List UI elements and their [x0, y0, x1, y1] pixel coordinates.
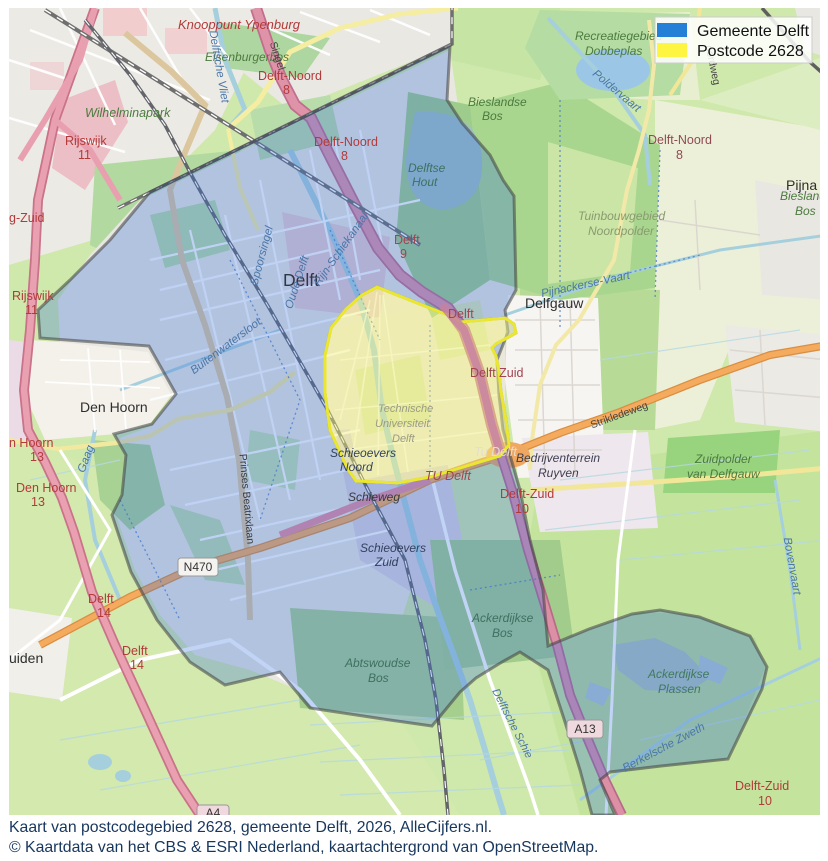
svg-text:13: 13 [31, 495, 45, 509]
svg-text:A13: A13 [574, 722, 596, 736]
svg-text:Universiteit: Universiteit [375, 418, 430, 430]
svg-text:Dobbeplas: Dobbeplas [585, 44, 642, 58]
svg-text:uiden: uiden [9, 650, 43, 666]
svg-text:Rijswijk: Rijswijk [12, 289, 54, 303]
svg-text:8: 8 [676, 148, 683, 162]
svg-text:Bos: Bos [492, 626, 513, 640]
svg-text:Delft-Zuid: Delft-Zuid [735, 779, 789, 793]
svg-text:Noordpolder: Noordpolder [588, 224, 655, 238]
svg-text:Bos: Bos [795, 204, 816, 218]
svg-text:Bos: Bos [482, 109, 503, 123]
svg-text:14: 14 [97, 606, 111, 620]
svg-text:A4: A4 [206, 806, 221, 815]
svg-text:Den Hoorn: Den Hoorn [16, 481, 76, 495]
svg-text:Ruyven: Ruyven [538, 466, 579, 480]
svg-text:Knooppunt Ypenburg: Knooppunt Ypenburg [178, 17, 301, 32]
svg-text:Noord: Noord [340, 460, 373, 474]
svg-text:Recreatiegebied: Recreatiegebied [575, 29, 663, 43]
svg-text:Gemeente Delft: Gemeente Delft [697, 23, 810, 40]
svg-text:11: 11 [25, 303, 38, 317]
svg-text:Schieweg: Schieweg [348, 490, 400, 504]
svg-text:Tuinbouwgebied: Tuinbouwgebied [578, 209, 666, 223]
svg-text:Schieoevers: Schieoevers [360, 541, 426, 555]
svg-text:Zuidpolder: Zuidpolder [694, 452, 753, 466]
svg-text:Wilhelminapark: Wilhelminapark [85, 106, 171, 120]
svg-text:Bieslandse: Bieslandse [468, 95, 527, 109]
svg-text:TU Delft: TU Delft [425, 469, 471, 483]
svg-text:Bedrijventerrein: Bedrijventerrein [516, 451, 600, 465]
svg-text:Schieoevers: Schieoevers [330, 446, 396, 460]
svg-text:Delft-Noord: Delft-Noord [314, 135, 378, 149]
svg-text:Delftse: Delftse [408, 161, 446, 175]
svg-text:g-Zuid: g-Zuid [9, 211, 44, 225]
svg-text:n Hoorn: n Hoorn [9, 436, 54, 450]
svg-text:8: 8 [341, 149, 348, 163]
svg-text:Tu Delft: Tu Delft [474, 445, 517, 459]
svg-text:Zuid: Zuid [374, 555, 399, 569]
svg-text:Ackerdijkse: Ackerdijkse [471, 611, 534, 625]
svg-text:Technische: Technische [378, 403, 433, 415]
svg-text:11: 11 [78, 148, 91, 162]
svg-text:Delft: Delft [88, 592, 114, 606]
svg-text:Bos: Bos [368, 671, 389, 685]
svg-text:8: 8 [283, 83, 290, 97]
svg-text:Abtswoudse: Abtswoudse [344, 656, 411, 670]
svg-text:10: 10 [758, 794, 772, 808]
svg-text:van Delfgauw: van Delfgauw [687, 467, 761, 481]
svg-text:Delft: Delft [394, 233, 420, 247]
svg-text:Delft-Zuid: Delft-Zuid [500, 487, 554, 501]
svg-text:Hout: Hout [412, 175, 438, 189]
svg-text:14: 14 [130, 658, 144, 672]
svg-text:N470: N470 [184, 560, 213, 574]
svg-text:9: 9 [400, 247, 407, 261]
svg-text:10: 10 [515, 502, 529, 516]
svg-text:13: 13 [30, 450, 44, 464]
svg-text:Plassen: Plassen [658, 682, 701, 696]
svg-text:Rijswijk: Rijswijk [65, 134, 107, 148]
svg-text:Ackerdijkse: Ackerdijkse [647, 667, 710, 681]
svg-text:Bieslandse: Bieslandse [780, 189, 820, 203]
svg-text:Delft-Noord: Delft-Noord [258, 69, 322, 83]
svg-text:Delft-Noord: Delft-Noord [648, 133, 712, 147]
svg-text:Delft: Delft [122, 644, 148, 658]
svg-text:Den Hoorn: Den Hoorn [80, 399, 148, 415]
svg-text:Delft Zuid: Delft Zuid [470, 366, 524, 380]
svg-text:Delft: Delft [392, 433, 416, 445]
svg-text:Delft: Delft [448, 307, 474, 321]
svg-text:Postcode 2628: Postcode 2628 [697, 43, 804, 60]
